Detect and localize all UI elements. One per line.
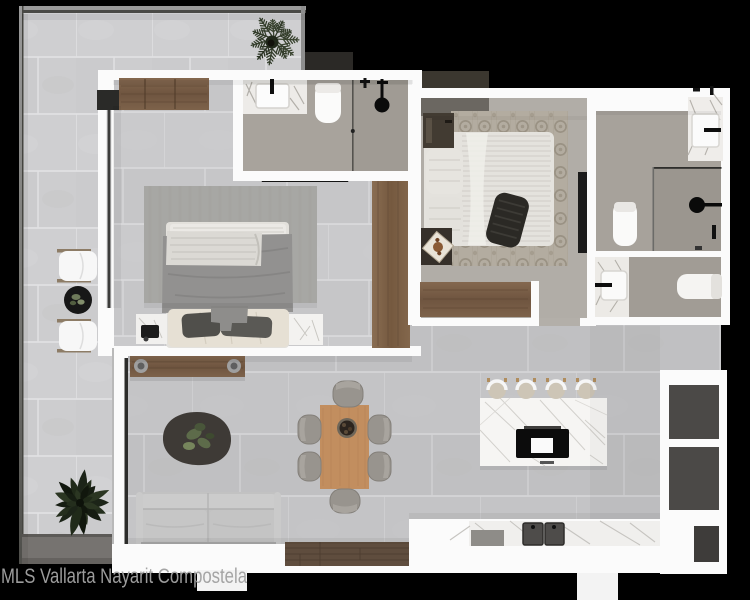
svg-text:MLS Vallarta Nayarit Compostel: MLS Vallarta Nayarit Compostela [1, 564, 247, 588]
